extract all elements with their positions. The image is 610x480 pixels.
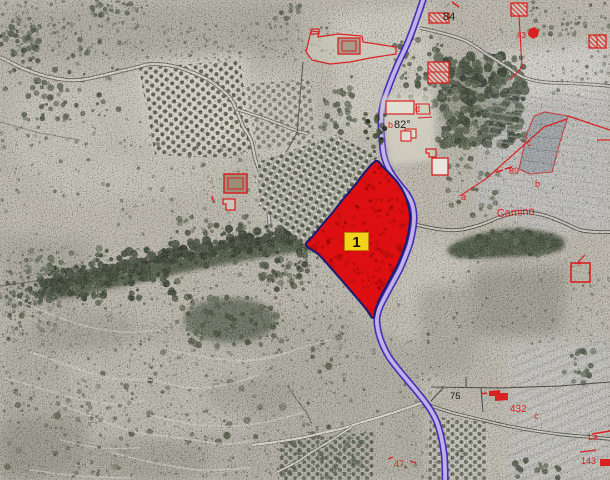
svg-text:La: La (588, 432, 598, 442)
svg-text:75: 75 (450, 391, 461, 402)
svg-text:143: 143 (581, 456, 596, 466)
svg-text:82°: 82° (394, 119, 411, 131)
svg-text:e: e (577, 259, 582, 268)
svg-text:c: c (527, 138, 532, 148)
svg-text:d: d (415, 104, 420, 114)
svg-text:c: c (534, 411, 539, 421)
svg-text:47: 47 (394, 459, 404, 469)
svg-text:432: 432 (510, 404, 527, 415)
svg-text:b: b (388, 120, 393, 130)
svg-text:84: 84 (443, 11, 455, 23)
svg-text:a: a (461, 192, 466, 202)
svg-text:89: 89 (509, 166, 519, 176)
svg-text:1: 1 (352, 234, 360, 251)
svg-text:83: 83 (517, 31, 526, 40)
svg-text:b: b (535, 179, 540, 189)
svg-text:73: 73 (455, 449, 465, 459)
